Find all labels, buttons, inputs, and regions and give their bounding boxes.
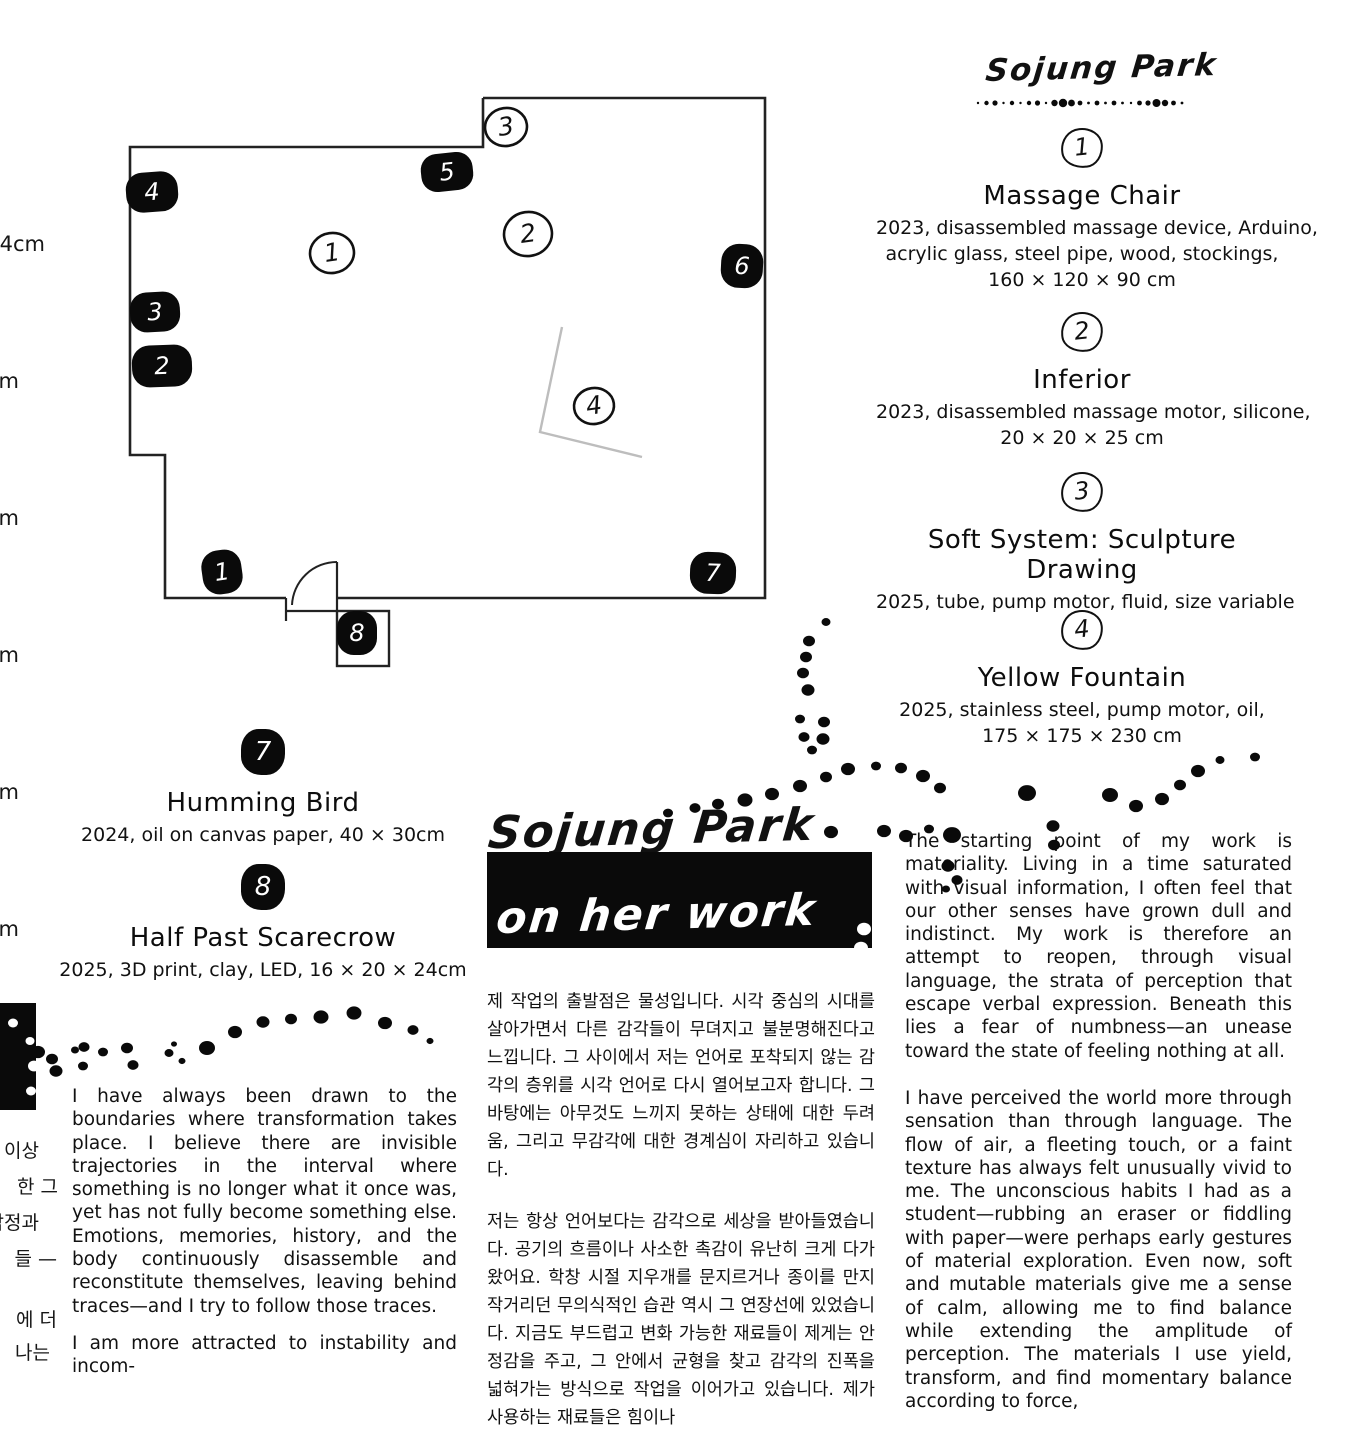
plan-marker-circle: 3 (483, 105, 530, 148)
trail-dot (1216, 756, 1225, 764)
edge-text-fragment: 에 더 (16, 1305, 57, 1332)
trail-dot (822, 618, 831, 626)
work-item: 8Half Past Scarecrow2025, 3D print, clay… (57, 864, 469, 983)
trail-dot (802, 684, 815, 695)
work-caption-line: 2023, disassembled massage device, Ardui… (876, 215, 1288, 241)
underline-dot (1027, 101, 1031, 105)
door-swing-arc (292, 562, 337, 605)
edge-text-fragment: 들 — (14, 1244, 57, 1271)
work-caption-line: 2025, 3D print, clay, LED, 16 × 20 × 24c… (57, 957, 469, 983)
trail-dot (803, 636, 815, 647)
trail-dot (314, 1010, 329, 1023)
svg-text:5: 5 (438, 157, 456, 186)
trail-dot-white (26, 1087, 36, 1096)
statement-subtitle: on her work (494, 885, 819, 944)
work-caption: 2023, disassembled massage motor, silico… (876, 399, 1288, 451)
edge-text-fragment: 4cm (0, 232, 45, 256)
underline-dot (1171, 101, 1176, 106)
underline-dot (1087, 102, 1090, 105)
plan-pill-markers: 45632178 (125, 150, 764, 655)
work-caption-line: 2023, disassembled massage motor, silico… (876, 399, 1288, 425)
plan-marker-circle: 1 (307, 230, 356, 276)
english-paragraph: The starting point of my work is materia… (905, 830, 1292, 1063)
underline-dot (977, 102, 979, 104)
trail-dot (79, 1042, 90, 1052)
underline-dot (1095, 101, 1100, 106)
underline-dot (1137, 101, 1142, 106)
trail-dot (1018, 785, 1036, 801)
svg-text:8: 8 (349, 619, 364, 647)
trail-dot (347, 1006, 362, 1019)
work-item: 1Massage Chair2023, disassembled massage… (876, 128, 1288, 293)
underline-dot (1019, 102, 1021, 104)
underline-dot (1181, 102, 1184, 105)
trail-dot (179, 1058, 186, 1064)
trail-dot (46, 1054, 58, 1065)
work-number-marker: 2 (1059, 310, 1105, 354)
trail-dot (820, 772, 832, 783)
underline-dot (1153, 99, 1161, 107)
underline-dot (1059, 99, 1067, 107)
trail-dot (817, 733, 830, 744)
trail-dot (797, 668, 809, 679)
work-item: 3Soft System: Sculpture Drawing2025, tub… (876, 472, 1288, 615)
work-caption-line: acrylic glass, steel pipe, wood, stockin… (876, 241, 1288, 267)
statement-subtitle-banner: on her work (487, 852, 872, 948)
underline-dot (1112, 101, 1117, 106)
trail-dot (31, 1046, 45, 1058)
plan-marker-filled: 8 (337, 611, 377, 655)
underline-dot (1145, 100, 1150, 105)
trail-dot (165, 1049, 174, 1057)
edge-text-fragment: m (0, 643, 19, 667)
trail-dot (257, 1016, 270, 1027)
trail-dot (818, 717, 830, 728)
trail-dot (98, 1048, 108, 1057)
work-number-marker: 4 (1059, 608, 1105, 652)
plan-marker-circle: 2 (501, 209, 555, 259)
svg-text:7: 7 (705, 559, 722, 588)
work-caption-line: 160 × 120 × 90 cm (876, 267, 1288, 293)
svg-text:1: 1 (322, 237, 342, 268)
trail-dot (877, 825, 891, 837)
svg-text:2: 2 (154, 352, 170, 381)
trail-dot (171, 1041, 177, 1046)
work-item: 7Humming Bird2024, oil on canvas paper, … (57, 729, 469, 848)
trail-dot (841, 763, 855, 775)
underline-dot (1035, 100, 1040, 105)
edge-text-fragment: m (0, 917, 19, 941)
svg-text:1: 1 (212, 557, 231, 587)
underline-dot (1078, 101, 1083, 106)
work-item: 2Inferior2023, disassembled massage moto… (876, 312, 1288, 451)
trail-dot (800, 652, 812, 663)
exhibition-leaflet-page: { "page": {"background":"#ffffff","ink":… (0, 0, 1349, 1349)
work-caption-line: 2025, stainless steel, pump motor, oil, (876, 697, 1288, 723)
edge-text-fragment: 한 그 (17, 1172, 58, 1199)
underline-dot (1010, 101, 1014, 105)
english-paragraph: I am more attracted to instability and i… (72, 1332, 457, 1379)
work-title: Massage Chair (876, 181, 1288, 211)
plan-circle-markers: 1234 (307, 105, 616, 426)
svg-text:6: 6 (734, 252, 751, 281)
edge-text-fragment: m (0, 369, 19, 393)
trail-dot (871, 762, 881, 771)
trail-dot (78, 1062, 88, 1071)
svg-text:2: 2 (518, 218, 538, 249)
work-number-marker: 8 (241, 864, 285, 910)
korean-paragraph: 제 작업의 출발점은 물성입니다. 시각 중심의 시대를 살아가면서 다른 감각… (487, 988, 875, 1184)
english-paragraph: I have always been drawn to the boundari… (72, 1085, 457, 1318)
work-title: Inferior (876, 365, 1288, 395)
floor-plan (130, 98, 765, 666)
trail-dot (1250, 753, 1260, 762)
underline-dot (1162, 100, 1168, 106)
floor-plan-walls (130, 98, 765, 598)
plan-marker-filled: 1 (199, 547, 245, 596)
work-caption: 2025, stainless steel, pump motor, oil,1… (876, 697, 1288, 749)
underline-dot (1068, 100, 1075, 107)
edge-text-fragment: 감정과 (0, 1208, 39, 1235)
trail-dot (793, 780, 807, 792)
plan-marker-filled: 2 (131, 344, 192, 388)
trail-dot (1191, 765, 1205, 777)
plan-marker-filled: 3 (129, 291, 181, 334)
edge-text-fragment: m (0, 780, 19, 804)
english-statement-column-left: I have always been drawn to the boundari… (72, 1085, 457, 1393)
english-statement-column-right: The starting point of my work is materia… (905, 830, 1292, 1427)
trail-dot (795, 715, 805, 724)
work-number-marker: 1 (1059, 126, 1105, 170)
bottom-left-black-box (0, 1003, 36, 1110)
work-title: Humming Bird (57, 788, 469, 818)
underline-dot (1130, 102, 1132, 104)
trail-dot (50, 1065, 63, 1076)
trail-dot (1155, 793, 1169, 805)
trail-dot (285, 1014, 297, 1025)
work-caption-line: 2024, oil on canvas paper, 40 × 30cm (57, 822, 469, 848)
trail-dot (1129, 800, 1143, 812)
trail-dot (916, 770, 930, 782)
statement-artist-name: Sojung Park (486, 798, 817, 859)
plan-marker-circle: 4 (572, 385, 617, 426)
trail-dot-white (28, 1061, 40, 1072)
underline-dot (1002, 102, 1004, 104)
underline-dot (1045, 102, 1047, 104)
artist-name-header: Sojung Park (984, 47, 1219, 89)
trail-dot (895, 763, 907, 774)
work-title: Yellow Fountain (876, 663, 1288, 693)
trail-dot (934, 783, 946, 794)
underline-dot (1051, 100, 1057, 106)
trail-dot (408, 1025, 419, 1035)
korean-paragraph: 저는 항상 언어보다는 감각으로 세상을 받아들였습니다. 공기의 흐름이나 사… (487, 1208, 875, 1432)
work-title: Soft System: Sculpture Drawing (876, 525, 1288, 585)
trail-dot (1102, 788, 1118, 802)
underline-dot (1121, 102, 1124, 105)
trail-dot (799, 732, 810, 742)
work-caption: 2025, 3D print, clay, LED, 16 × 20 × 24c… (57, 957, 469, 983)
work-caption: 2024, oil on canvas paper, 40 × 30cm (57, 822, 469, 848)
trail-dot-white (26, 1037, 35, 1045)
artist-header-dotted-underline (977, 99, 1184, 107)
work-item: 4Yellow Fountain2025, stainless steel, p… (876, 610, 1288, 749)
underline-dot (992, 100, 997, 105)
work-caption-line: 20 × 20 × 25 cm (876, 425, 1288, 451)
underline-dot (1104, 102, 1107, 105)
trail-dot (199, 1041, 215, 1055)
trail-dot (121, 1043, 133, 1054)
work-title: Half Past Scarecrow (57, 923, 469, 953)
edge-text-fragment: m (0, 506, 19, 530)
trail-dot (807, 746, 817, 755)
svg-text:4: 4 (143, 178, 160, 207)
trail-dot (427, 1038, 434, 1044)
plan-marker-filled: 5 (419, 150, 475, 193)
plan-gray-line (540, 327, 642, 457)
trail-dot (1174, 780, 1186, 791)
entry-box (337, 611, 389, 666)
underline-dot (984, 101, 988, 105)
trail-dot (228, 1026, 242, 1038)
plan-marker-filled: 7 (689, 551, 736, 595)
edge-text-fragment: 이상 (4, 1136, 39, 1163)
edge-text-fragment: 나는 (15, 1338, 50, 1365)
work-number-marker: 7 (241, 729, 285, 775)
svg-text:3: 3 (147, 298, 164, 327)
work-caption-line: 175 × 175 × 230 cm (876, 723, 1288, 749)
trail-dot (128, 1060, 139, 1070)
plan-marker-filled: 6 (720, 243, 764, 289)
english-paragraph: I have perceived the world more through … (905, 1087, 1292, 1413)
svg-text:3: 3 (496, 111, 516, 142)
trail-dot (71, 1046, 79, 1053)
svg-text:4: 4 (584, 390, 604, 421)
trail-dot-white (8, 1019, 18, 1028)
trail-dot (824, 826, 838, 838)
plan-marker-filled: 4 (125, 170, 180, 214)
work-number-marker: 3 (1059, 470, 1105, 514)
work-caption: 2023, disassembled massage device, Ardui… (876, 215, 1288, 293)
korean-statement-column: 제 작업의 출발점은 물성입니다. 시각 중심의 시대를 살아가면서 다른 감각… (487, 988, 875, 1432)
trail-dot (378, 1017, 392, 1029)
